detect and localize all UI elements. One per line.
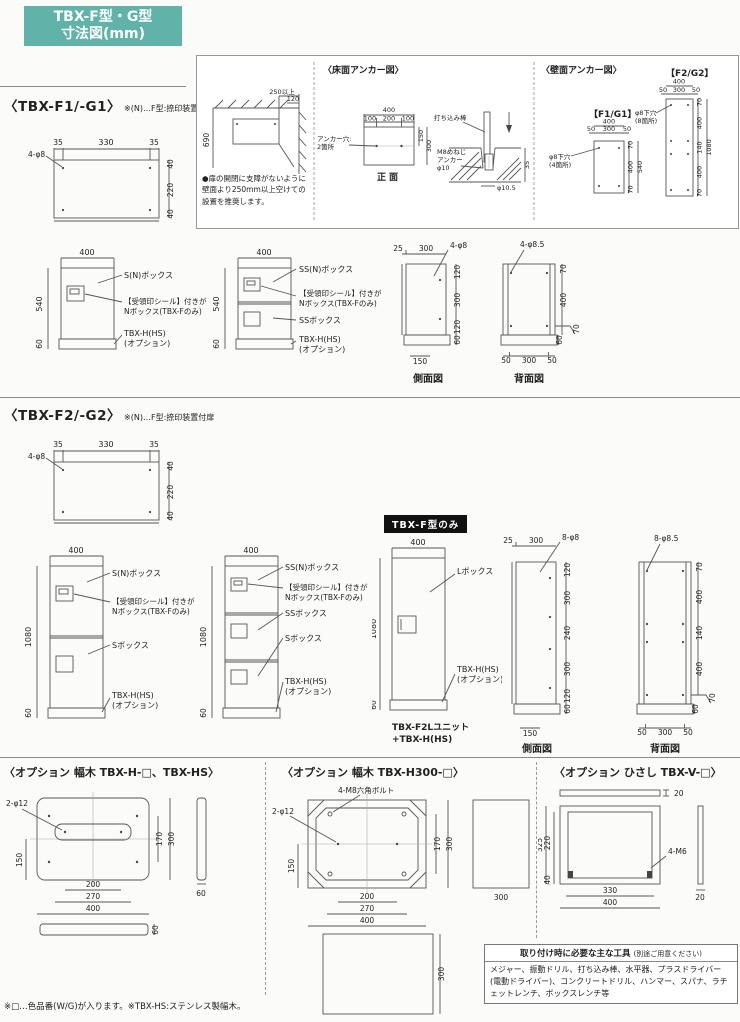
dim: 60 (372, 700, 378, 710)
dim: 300 (494, 893, 509, 902)
section-title-text: 〈TBX-F1/-G1〉 (4, 99, 121, 115)
footnote: ※□…色品番(W/G)が入ります。※TBX-HS:ステンレス製幅木。 (4, 1000, 246, 1012)
part-label: S(N)ボックス (124, 271, 173, 280)
section-title-f1: 〈TBX-F1/-G1〉※(N)…F型:捺印装置付扉 (4, 95, 214, 115)
dim: 240 (563, 626, 572, 641)
dim: 70 (627, 141, 635, 149)
dim: 50 (659, 86, 667, 94)
part-label: Nボックス(TBX-Fのみ) (124, 307, 202, 316)
option3-diagram: 20 325 220 40 4-M6 330 400 20 (538, 784, 738, 932)
dim: 150 (523, 729, 538, 738)
cabinet-shapes (380, 548, 455, 710)
section-title-text: 〈TBX-F2/-G2〉 (4, 408, 121, 424)
part-label: Nボックス(TBX-Fのみ) (112, 607, 190, 616)
part-label: S(N)ボックス (112, 569, 161, 578)
option2-title: 〈オプション 幅木 TBX-H300-□〉 (282, 764, 464, 780)
part-label: TBX-H(HS) (284, 677, 327, 686)
f2-front-view-l-diagram: 400 1080 60 Lボックス TBX-H(HS) (オプション) TBX-… (372, 512, 502, 747)
part-label: アンカー (437, 156, 463, 164)
dim: 300 (529, 536, 544, 545)
dim: 60 (453, 335, 462, 345)
dim: 70 (627, 185, 635, 193)
dim: 60 (24, 708, 33, 718)
dim: 1080 (199, 627, 208, 647)
hole-label: 4-φ8 (28, 150, 45, 159)
cabinet-shapes (225, 258, 296, 349)
part-label: 【受領印シール】付きが (285, 582, 368, 592)
dim: 300 (522, 356, 537, 365)
dim: 300 (453, 293, 462, 308)
hole-label: 2-φ12 (272, 807, 294, 816)
clearance-diagram (213, 94, 306, 174)
tools-title: 取り付け時に必要な主な工具 (別途ご用意ください) (485, 945, 737, 962)
clearance-note: ●扉の開閉に支障がないように壁面より250mm以上空けての設置を推奨します。 (202, 173, 312, 207)
wall-anchor-title: 〈壁面アンカー図〉 (541, 64, 622, 76)
anchor-info-box: 250以上 120 690 〈床面アンカー図〉 400 100 200 100 … (196, 55, 739, 229)
dim: 150 (417, 130, 425, 142)
dim: 35 (149, 440, 159, 449)
dim: 540 (636, 161, 644, 173)
part-label: φ10 (437, 164, 450, 172)
section-title-f2: 〈TBX-F2/-G2〉※(N)…F型:捺印装置付扉 (4, 404, 214, 424)
part-label: (オプション) (124, 339, 170, 348)
dim: 220 (166, 485, 175, 500)
f2-front-view-s-diagram: 400 1080 60 S(N)ボックス 【受領印シール】付きが Nボックス(T… (12, 536, 196, 741)
dim: 140 (696, 141, 704, 153)
dim: 300 (419, 244, 434, 253)
option3-title: 〈オプション ひさし TBX-V-□〉 (554, 764, 722, 780)
unit-caption: TBX-F2Lユニット (392, 722, 469, 733)
option1-title: 〈オプション 幅木 TBX-H-□、TBX-HS〉 (4, 764, 219, 780)
dim: 150 (413, 357, 428, 366)
caption: 正面 (377, 172, 401, 183)
part-label: Lボックス (457, 567, 493, 576)
part-label: 打ち込み棒 (434, 113, 467, 122)
top-view-shapes (46, 148, 169, 221)
dim: 220 (166, 183, 175, 198)
dim: 40 (166, 159, 175, 169)
dim: 120 (287, 95, 299, 103)
divider (265, 762, 266, 995)
part-label: Sボックス (112, 641, 149, 650)
dim: 60 (691, 704, 700, 714)
dim: 540 (212, 296, 221, 311)
f1-front-view-ss-diagram: 400 540 60 SS(N)ボックス 【受領印シール】付きが Nボックス(T… (203, 238, 395, 393)
hole-label: アンカー穴: (317, 134, 351, 143)
bolt-label: 4-M8六角ボルト (338, 785, 394, 795)
part-label: Sボックス (285, 634, 322, 643)
dim: 60 (555, 335, 564, 345)
dim: 35 (53, 440, 63, 449)
dim: 400 (360, 916, 375, 925)
top-view-shapes (46, 450, 169, 523)
dim: 35 (53, 138, 63, 147)
part-label: (オプション) (457, 675, 502, 684)
dim: 35 (149, 138, 159, 147)
dim: 60 (35, 339, 44, 349)
part-label: TBX-H(HS) (123, 329, 166, 338)
part-label: (オプション) (112, 701, 158, 710)
dim: 400 (243, 546, 258, 555)
side-view-shapes (402, 250, 456, 356)
part-label: M8めねじ (437, 148, 466, 156)
plinth-shapes (22, 792, 206, 935)
part-label: 【受領印シール】付きが (299, 288, 382, 298)
dim: 120 (563, 689, 572, 704)
part-label: TBX-H(HS) (456, 665, 499, 674)
dim: 40 (166, 209, 175, 219)
dim: 300 (563, 662, 572, 677)
dim: 690 (202, 133, 211, 148)
dim: 120 (453, 320, 462, 335)
dim: 20 (674, 789, 684, 798)
part-label: TBX-H(HS) (298, 335, 341, 344)
dim: 400 (410, 538, 425, 547)
f1-top-view-diagram: 35 330 35 4-φ8 40 220 40 (26, 126, 191, 236)
hole-label: 2-φ12 (6, 799, 28, 808)
dim: 400 (696, 117, 704, 129)
dim: 50 (683, 728, 693, 737)
f2-top-view-diagram: 35 330 35 4-φ8 40 220 40 (26, 428, 191, 538)
part-label: (オプション) (299, 345, 345, 354)
dim: 60 (199, 708, 208, 718)
dim: 330 (98, 138, 113, 147)
dim: 60 (212, 339, 221, 349)
dim: 400 (559, 293, 568, 308)
option1-diagram: 2-φ12 150 170 300 200 270 400 60 60 (2, 784, 264, 949)
hole-label: (4箇所) (549, 160, 571, 169)
page-title-line2: 寸法図(mm) (24, 26, 182, 44)
dim: 1080 (24, 627, 33, 647)
dim: 220 (543, 836, 552, 851)
dim: 25 (503, 536, 513, 545)
dim: 400 (627, 161, 635, 173)
dim: 400 (68, 546, 83, 555)
hole-label: 2箇所 (317, 142, 335, 151)
dim: 40 (166, 511, 175, 521)
hole-label: 8-φ8 (562, 533, 579, 542)
dim: 400 (696, 166, 704, 178)
dim: 300 (437, 967, 446, 982)
dim: 300 (167, 832, 176, 847)
section-note: ※(N)…F型:捺印装置付扉 (124, 413, 214, 422)
dim: 300 (673, 86, 685, 94)
hole-label: 4-φ8.5 (520, 240, 545, 249)
f1-back-view-diagram: 4-φ8.5 70 400 70 60 50 300 50 背面図 (478, 230, 613, 392)
dim: 120 (453, 265, 462, 280)
divider (0, 757, 740, 758)
dim: 270 (360, 904, 375, 913)
dim: 50 (623, 125, 631, 133)
caption: 背面図 (650, 742, 680, 755)
part-label: 【受領印シール】付きが (124, 296, 207, 306)
part-label: TBX-H(HS) (111, 691, 154, 700)
hole-label: 8-φ8.5 (654, 534, 679, 543)
floor-anchor-title: 〈床面アンカー図〉 (323, 64, 404, 76)
part-label: (オプション) (285, 687, 331, 696)
part-label: Nボックス(TBX-Fのみ) (285, 593, 363, 602)
dim: 170 (433, 837, 442, 852)
hole-label: φ8下穴 (549, 152, 571, 161)
dim: 200 (86, 880, 101, 889)
cabinet-shapes (212, 556, 283, 718)
dim: 400 (673, 78, 685, 86)
caption: 背面図 (514, 372, 544, 385)
dim: 100 (364, 115, 376, 123)
wall-anchor-f1 (571, 126, 638, 193)
dim: 40 (166, 461, 175, 471)
hole-label: 4-φ8 (450, 241, 467, 250)
catalog-page: TBX-F型・G型 寸法図(mm) 〈TBX-F1/-G1〉※(N)…F型:捺印… (0, 0, 740, 1022)
dim: 70 (695, 562, 704, 572)
part-label: 【受領印シール】付きが (112, 596, 195, 606)
f2-back-view-diagram: 8-φ8.5 70 400 140 400 70 60 50 300 50 背面… (614, 522, 740, 758)
side-view-shapes (512, 542, 566, 728)
dim: 60 (151, 925, 160, 935)
part-label: SSボックス (299, 316, 341, 325)
dim: 140 (695, 626, 704, 641)
cabinet-shapes (48, 258, 122, 349)
dim: 60 (563, 704, 572, 714)
page-title-badge: TBX-F型・G型 寸法図(mm) (24, 6, 182, 46)
dim: 200 (360, 892, 375, 901)
f2-side-view-diagram: 25 300 8-φ8 120 300 240 300 120 60 150 側… (500, 522, 620, 758)
dim: 200 (383, 115, 395, 123)
dim: 150 (15, 853, 24, 868)
dim: 330 (98, 440, 113, 449)
caption: 側面図 (412, 372, 443, 385)
tools-title-note: (別途ご用意ください) (634, 950, 702, 958)
tools-title-text: 取り付け時に必要な主な工具 (520, 949, 631, 959)
f2-front-view-ss-diagram: 400 1080 60 SS(N)ボックス 【受領印シール】付きが Nボックス(… (190, 536, 378, 741)
page-title-line1: TBX-F型・G型 (24, 9, 182, 27)
dim: 70 (572, 324, 581, 334)
dim: 400 (256, 248, 271, 257)
dim: 50 (692, 86, 700, 94)
f1-front-view-s-diagram: 400 540 60 S(N)ボックス 【受領印シール】付きが Nボックス(TB… (26, 238, 216, 393)
divider (0, 397, 740, 398)
dim: 270 (86, 892, 101, 901)
part-label: Nボックス(TBX-Fのみ) (299, 299, 377, 308)
dim: 50 (587, 125, 595, 133)
dim: 50 (637, 728, 647, 737)
dim: 70 (559, 264, 568, 274)
divider (536, 762, 537, 938)
part-label: SS(N)ボックス (285, 563, 339, 572)
unit-caption: +TBX-H(HS) (392, 735, 452, 745)
dim: 330 (603, 886, 618, 895)
dim: 1080 (705, 139, 713, 156)
dim: 400 (383, 106, 395, 114)
caption: 側面図 (521, 742, 552, 755)
dim: 35 (523, 161, 531, 169)
hole-label: φ8下穴 (635, 108, 657, 117)
dim: 40 (543, 875, 552, 885)
dim: 50 (547, 356, 557, 365)
dim: 50 (501, 356, 511, 365)
part-label: SS(N)ボックス (299, 265, 353, 274)
dim: 300 (445, 837, 454, 852)
dim: 120 (563, 563, 572, 578)
dim: 540 (35, 296, 44, 311)
hole-label: 4-φ8 (28, 452, 45, 461)
dim: 300 (658, 728, 673, 737)
divider (0, 86, 186, 87)
dim: 60 (196, 889, 206, 898)
tools-body: メジャー、振動ドリル、打ち込み棒、水平器、プラスドライバー(電動ドライバー)、コ… (485, 962, 737, 1003)
dim: 400 (603, 898, 618, 907)
dim: φ10.5 (497, 184, 516, 192)
dim: 150 (287, 859, 296, 874)
dim: 170 (155, 832, 164, 847)
hole-label: (8箇所) (635, 116, 657, 125)
dim: 400 (695, 662, 704, 677)
dim: 100 (402, 115, 414, 123)
dim: 300 (425, 140, 433, 152)
cabinet-shapes (37, 556, 110, 718)
dim: 1080 (372, 619, 378, 639)
dim: 400 (695, 590, 704, 605)
bolt-label: 4-M6 (668, 847, 687, 856)
dim: 25 (393, 244, 403, 253)
dim: 400 (86, 904, 101, 913)
dim: 300 (563, 591, 572, 606)
dim: 70 (696, 189, 704, 197)
dim: 300 (603, 125, 615, 133)
tools-box: 取り付け時に必要な主な工具 (別途ご用意ください) メジャー、振動ドリル、打ち込… (484, 944, 738, 1004)
dim: 70 (708, 693, 717, 703)
part-label: SSボックス (285, 609, 327, 618)
dim: 70 (696, 98, 704, 106)
dim: 400 (79, 248, 94, 257)
dim: 20 (695, 893, 705, 902)
